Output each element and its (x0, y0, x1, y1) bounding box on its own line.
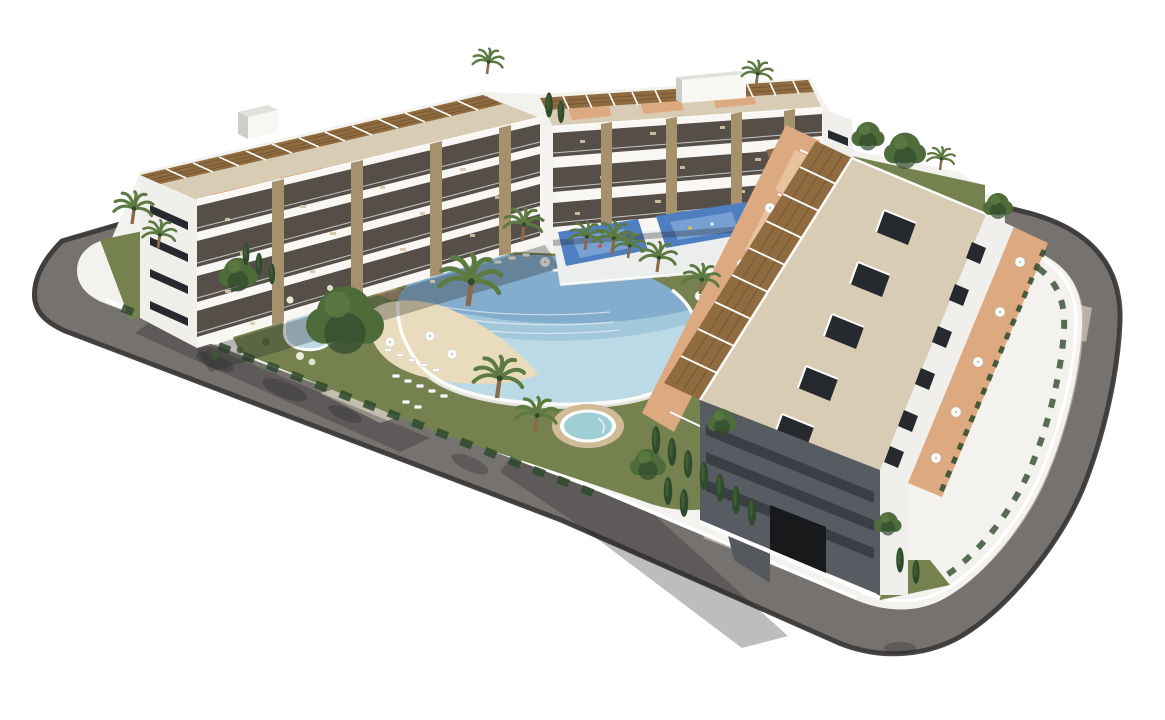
jacuzzi (552, 404, 624, 448)
building-left-roof-access (238, 105, 278, 139)
aerial-render (0, 0, 1165, 720)
render-canvas (0, 0, 1165, 720)
building-center-roof-access (676, 71, 746, 103)
